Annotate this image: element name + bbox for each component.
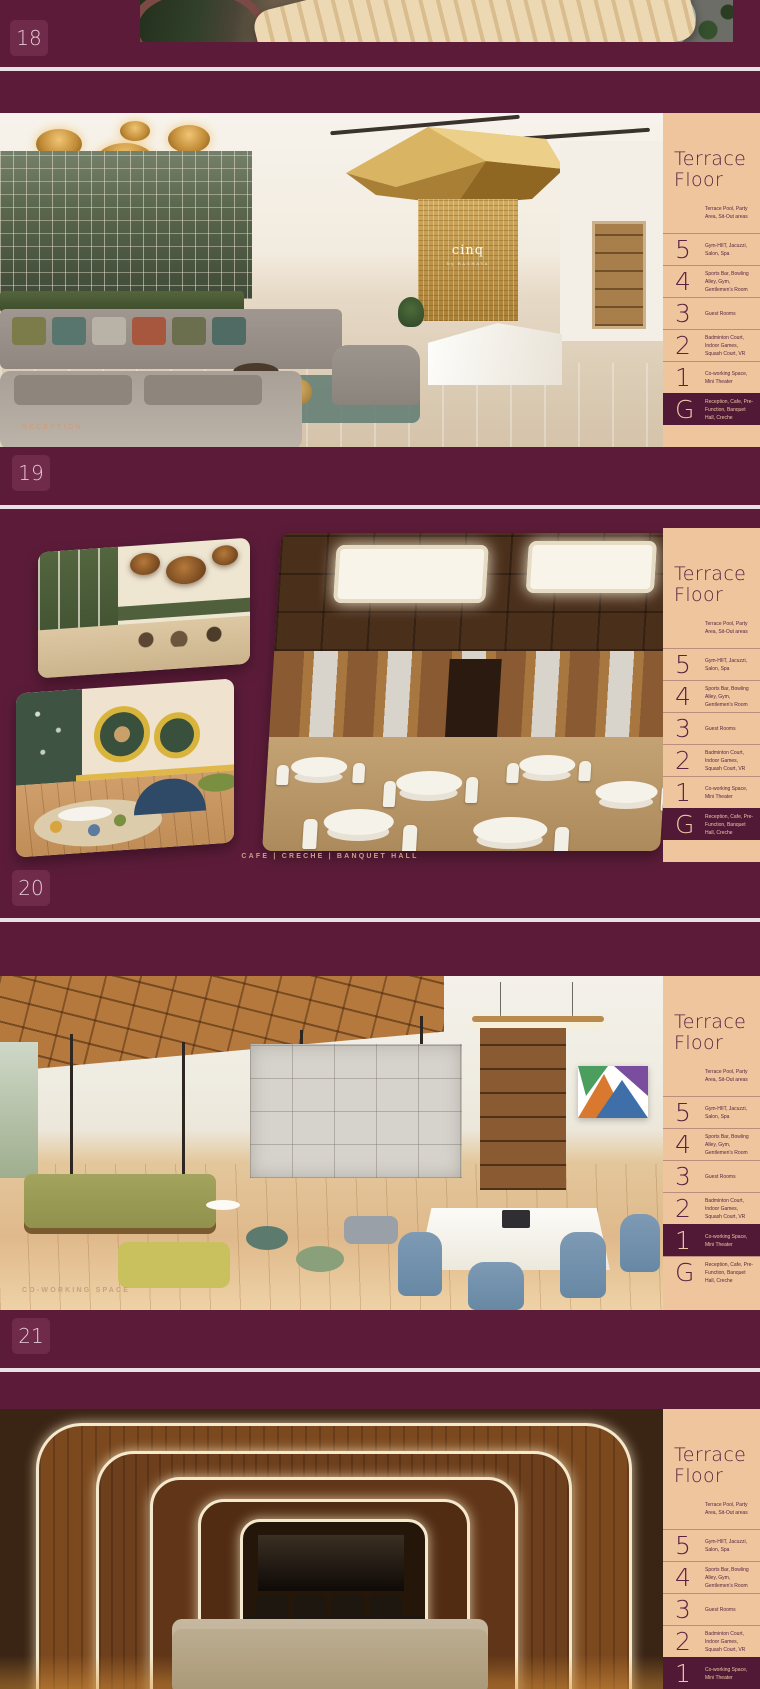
page-number-label: 21 bbox=[18, 1324, 43, 1348]
floor-row-3: 3 Guest Rooms bbox=[663, 297, 760, 329]
sidebar-title: Terrace Floor bbox=[663, 1409, 760, 1487]
floor-amenities: Gym-HIIT, Jacuzzi, Salon, Spa bbox=[705, 1105, 754, 1121]
floor-amenities: Co-working Space, Mini Theater bbox=[705, 370, 754, 386]
floor-number: 2 bbox=[675, 1629, 700, 1654]
floor-rows: 5 Gym-HIIT, Jacuzzi, Salon, Spa 4 Sports… bbox=[663, 233, 760, 447]
floor-row-3: 3 Guest Rooms bbox=[663, 1160, 760, 1192]
chalk-doodles bbox=[22, 698, 74, 772]
floor-amenities: Sports Bar, Bowling Alley, Gym, Gentleme… bbox=[705, 1133, 754, 1157]
floor-row-5: 5 Gym-HIIT, Jacuzzi, Salon, Spa bbox=[663, 1529, 760, 1561]
blue-chair bbox=[398, 1232, 442, 1296]
hall-doorway bbox=[445, 659, 502, 737]
page-number-21[interactable]: 21 bbox=[12, 1318, 50, 1354]
banquet-chair bbox=[352, 763, 365, 783]
floor-number: 3 bbox=[675, 301, 700, 326]
sidebar-title-line2: Floor bbox=[674, 585, 760, 606]
floor-number: 1 bbox=[675, 780, 700, 805]
floor-row-4: 4 Sports Bar, Bowling Alley, Gym, Gentle… bbox=[663, 1128, 760, 1160]
sidebar-slot-19: Terrace Floor Terrace Pool, Party Area, … bbox=[663, 113, 760, 447]
page-number-20[interactable]: 20 bbox=[12, 870, 50, 906]
floor-row-1: 1 Co-working Space, Mini Theater bbox=[663, 1657, 760, 1689]
floor-row-2: 2 Badminton Court, Indoor Games, Squash … bbox=[663, 744, 760, 776]
floor-number: G bbox=[675, 1260, 700, 1285]
floor-directory-sidebar: Terrace Floor Terrace Pool, Party Area, … bbox=[663, 113, 760, 447]
page-number-18[interactable]: 18 bbox=[10, 20, 48, 56]
floor-directory-sidebar: Terrace Floor Terrace Pool, Party Area, … bbox=[663, 976, 760, 1310]
banquet-chair bbox=[554, 827, 570, 851]
glass-green-wall bbox=[0, 151, 252, 299]
floor-row-5: 5 Gym-HIIT, Jacuzzi, Salon, Spa bbox=[663, 233, 760, 265]
ceiling-skylight bbox=[333, 545, 489, 603]
recliner-seat bbox=[370, 1595, 402, 1617]
floor-rows: 5 Gym-HIIT, Jacuzzi, Salon, Spa 4 Sports… bbox=[663, 1529, 760, 1689]
slide-separator bbox=[0, 918, 760, 922]
cushion-dark-teal bbox=[212, 317, 246, 345]
front-sofa bbox=[172, 1619, 488, 1689]
reception-desk bbox=[428, 323, 562, 385]
chalkboard-wall bbox=[16, 689, 82, 786]
cushion-rust bbox=[132, 317, 166, 345]
cushion-grey bbox=[92, 317, 126, 345]
ceiling-skylight bbox=[526, 541, 657, 593]
sidebar-bottom-padding bbox=[663, 1288, 760, 1310]
floor-row-5: 5 Gym-HIIT, Jacuzzi, Salon, Spa bbox=[663, 1096, 760, 1128]
floor-row-2: 2 Badminton Court, Indoor Games, Squash … bbox=[663, 1625, 760, 1657]
abstract-artwork bbox=[578, 1066, 648, 1118]
floor-number: 5 bbox=[675, 1100, 700, 1125]
banquet-chair bbox=[276, 765, 289, 785]
linear-pendant-light bbox=[472, 1016, 604, 1022]
floor-amenities: Reception, Cafe, Pre-Function, Banquet H… bbox=[705, 1261, 754, 1285]
side-table bbox=[206, 1200, 240, 1210]
terrace-floor-amenities: Terrace Pool, Party Area, Sit-Out areas bbox=[705, 620, 755, 636]
recliner-seat bbox=[294, 1595, 326, 1617]
floor-row-G: G Reception, Cafe, Pre-Function, Banquet… bbox=[663, 393, 760, 425]
slide-separator bbox=[0, 505, 760, 509]
blue-chair bbox=[560, 1232, 606, 1298]
laptop bbox=[502, 1210, 530, 1228]
floor-row-1: 1 Co-working Space, Mini Theater bbox=[663, 361, 760, 393]
floor-number: 5 bbox=[675, 237, 700, 262]
floor-row-2: 2 Badminton Court, Indoor Games, Squash … bbox=[663, 329, 760, 361]
floor-amenities: Sports Bar, Bowling Alley, Gym, Gentleme… bbox=[705, 1566, 754, 1590]
jogging-track-shape bbox=[140, 0, 266, 42]
padded-wall-panels bbox=[250, 1044, 462, 1178]
blue-chair bbox=[468, 1262, 524, 1310]
floor-number: 1 bbox=[675, 1661, 700, 1686]
sidebar-title-line2: Floor bbox=[674, 170, 760, 191]
sidebar-bottom-padding bbox=[663, 840, 760, 862]
floor-number: 1 bbox=[675, 365, 700, 390]
aerial-masterplan-image bbox=[140, 0, 733, 42]
sidebar-slot-20: Terrace Floor Terrace Pool, Party Area, … bbox=[663, 528, 760, 862]
sidebar-title-line1: Terrace bbox=[674, 1012, 760, 1033]
floor-amenities: Co-working Space, Mini Theater bbox=[705, 785, 754, 801]
floor-amenities: Sports Bar, Bowling Alley, Gym, Gentleme… bbox=[705, 270, 754, 294]
terrace-floor-amenities: Terrace Pool, Party Area, Sit-Out areas bbox=[705, 1501, 755, 1517]
round-play-niche bbox=[154, 711, 200, 760]
sidebar-slot-22: Terrace Floor Terrace Pool, Party Area, … bbox=[663, 1409, 760, 1689]
image-caption: CO-WORKING SPACE bbox=[22, 1287, 130, 1294]
round-play-niche bbox=[94, 704, 150, 764]
floor-amenities: Gym-HIIT, Jacuzzi, Salon, Spa bbox=[705, 242, 754, 258]
metal-post bbox=[182, 1042, 185, 1192]
floor-row-G: G Reception, Cafe, Pre-Function, Banquet… bbox=[663, 1256, 760, 1288]
floor-amenities: Badminton Court, Indoor Games, Squash Co… bbox=[705, 749, 754, 773]
banquet-chair bbox=[506, 763, 519, 783]
pendant-cord bbox=[500, 982, 501, 1016]
banquet-chair bbox=[465, 777, 479, 803]
floor-row-4: 4 Sports Bar, Bowling Alley, Gym, Gentle… bbox=[663, 680, 760, 712]
floor-row-3: 3 Guest Rooms bbox=[663, 712, 760, 744]
page-number-label: 20 bbox=[18, 876, 43, 900]
floor-number: 4 bbox=[675, 269, 700, 294]
floor-number: 3 bbox=[675, 1597, 700, 1622]
grey-ottoman bbox=[344, 1216, 398, 1244]
sidebar-title-line1: Terrace bbox=[674, 149, 760, 170]
wood-bookshelf bbox=[480, 1028, 566, 1190]
floor-row-3: 3 Guest Rooms bbox=[663, 1593, 760, 1625]
chandelier bbox=[168, 125, 210, 153]
floor-row-1: 1 Co-working Space, Mini Theater bbox=[663, 776, 760, 808]
sidebar-title-line1: Terrace bbox=[674, 1445, 760, 1466]
coworking-space-image bbox=[0, 976, 663, 1310]
floor-number: 2 bbox=[675, 748, 700, 773]
sidebar-title: Terrace Floor bbox=[663, 528, 760, 606]
banquet-chair bbox=[302, 819, 318, 849]
chartreuse-ottoman bbox=[118, 1242, 230, 1288]
floor-row-5: 5 Gym-HIIT, Jacuzzi, Salon, Spa bbox=[663, 648, 760, 680]
seat-cushion bbox=[14, 375, 132, 405]
brochure-page-strip[interactable]: 18 cinq by RAGHAVA bbox=[0, 0, 760, 1689]
recliner-seat bbox=[256, 1595, 288, 1617]
floor-number: 5 bbox=[675, 1533, 700, 1558]
gold-feature-wall: cinq by RAGHAVA bbox=[418, 199, 518, 321]
floor-number: G bbox=[675, 812, 700, 837]
cushion-olive bbox=[12, 317, 46, 345]
floor-number: 3 bbox=[675, 1164, 700, 1189]
floor-amenities: Guest Rooms bbox=[705, 725, 754, 733]
metal-post bbox=[70, 1034, 73, 1188]
disc-pendant-lamp bbox=[130, 552, 160, 576]
slide-separator bbox=[0, 1368, 760, 1372]
chandelier bbox=[120, 121, 150, 141]
brand-name: cinq bbox=[452, 243, 484, 258]
lattice-screen bbox=[0, 151, 252, 299]
banquet-chair bbox=[383, 781, 397, 807]
green-pouf bbox=[296, 1246, 344, 1272]
banquet-hall-photo bbox=[262, 533, 679, 851]
recliner-seat bbox=[332, 1595, 364, 1617]
disc-pendant-lamp bbox=[212, 544, 238, 566]
floor-amenities: Badminton Court, Indoor Games, Squash Co… bbox=[705, 334, 754, 358]
floor-amenities: Reception, Cafe, Pre-Function, Banquet H… bbox=[705, 813, 754, 837]
floor-number: 5 bbox=[675, 652, 700, 677]
building-roof-shape bbox=[251, 0, 700, 42]
page-number-label: 19 bbox=[18, 461, 43, 485]
banquet-chair bbox=[578, 761, 591, 781]
potted-plant bbox=[398, 297, 424, 327]
floor-number: 4 bbox=[675, 684, 700, 709]
floor-amenities: Guest Rooms bbox=[705, 1606, 754, 1614]
floor-number: 1 bbox=[675, 1228, 700, 1253]
slide-separator bbox=[0, 67, 760, 71]
floor-directory-sidebar: Terrace Floor Terrace Pool, Party Area, … bbox=[663, 1409, 760, 1689]
image-caption: RECEPTION bbox=[22, 424, 83, 431]
sidebar-title: Terrace Floor bbox=[663, 113, 760, 191]
floor-number: 2 bbox=[675, 333, 700, 358]
floor-amenities: Co-working Space, Mini Theater bbox=[705, 1233, 754, 1249]
theater-screen bbox=[258, 1535, 404, 1591]
cushion-teal bbox=[52, 317, 86, 345]
floor-amenities: Badminton Court, Indoor Games, Squash Co… bbox=[705, 1630, 754, 1654]
floor-amenities: Gym-HIIT, Jacuzzi, Salon, Spa bbox=[705, 1538, 754, 1554]
pendant-cord bbox=[572, 982, 573, 1016]
floor-amenities: Badminton Court, Indoor Games, Squash Co… bbox=[705, 1197, 754, 1221]
floor-row-4: 4 Sports Bar, Bowling Alley, Gym, Gentle… bbox=[663, 1561, 760, 1593]
reception-lobby-image: cinq by RAGHAVA bbox=[0, 113, 663, 447]
teal-pouf bbox=[246, 1226, 288, 1250]
teddy-bear bbox=[114, 726, 130, 743]
floor-number: G bbox=[675, 397, 700, 422]
creche-photo bbox=[16, 678, 234, 857]
floor-amenities: Reception, Cafe, Pre-Function, Banquet H… bbox=[705, 398, 754, 422]
floor-row-1: 1 Co-working Space, Mini Theater bbox=[663, 1224, 760, 1256]
green-sofa bbox=[24, 1174, 216, 1228]
banquet-chair bbox=[402, 825, 418, 851]
floor-amenities: Guest Rooms bbox=[705, 310, 754, 318]
terrace-floor-amenities: Terrace Pool, Party Area, Sit-Out areas bbox=[705, 1068, 755, 1084]
terrace-floor-amenities: Terrace Pool, Party Area, Sit-Out areas bbox=[705, 205, 755, 221]
floor-number: 4 bbox=[675, 1565, 700, 1590]
mini-theater-image bbox=[0, 1409, 663, 1689]
sidebar-title-line2: Floor bbox=[674, 1033, 760, 1054]
sidebar-title-line2: Floor bbox=[674, 1466, 760, 1487]
floor-amenities: Guest Rooms bbox=[705, 1173, 754, 1181]
sidebar-slot-21: Terrace Floor Terrace Pool, Party Area, … bbox=[663, 976, 760, 1310]
page-number-19[interactable]: 19 bbox=[12, 455, 50, 491]
cushion-green bbox=[172, 317, 206, 345]
floor-number: 2 bbox=[675, 1196, 700, 1221]
floor-number: 4 bbox=[675, 1132, 700, 1157]
disc-pendant-lamp bbox=[166, 555, 206, 586]
side-window bbox=[0, 1042, 38, 1178]
image-caption: CAFE | CRECHE | BANQUET HALL bbox=[200, 853, 460, 860]
brand-logo: cinq by RAGHAVA bbox=[418, 243, 518, 266]
sidebar-bottom-padding bbox=[663, 425, 760, 447]
seat-cushion bbox=[144, 375, 262, 405]
sidebar-title: Terrace Floor bbox=[663, 976, 760, 1054]
page-number-label: 18 bbox=[16, 26, 41, 50]
floor-row-4: 4 Sports Bar, Bowling Alley, Gym, Gentle… bbox=[663, 265, 760, 297]
floor-amenities: Sports Bar, Bowling Alley, Gym, Gentleme… bbox=[705, 685, 754, 709]
amenities-collage bbox=[0, 528, 663, 862]
brand-byline: by RAGHAVA bbox=[418, 261, 518, 266]
floor-amenities: Gym-HIIT, Jacuzzi, Salon, Spa bbox=[705, 657, 754, 673]
sidebar-title-line1: Terrace bbox=[674, 564, 760, 585]
floor-directory-sidebar: Terrace Floor Terrace Pool, Party Area, … bbox=[663, 528, 760, 862]
cafe-photo bbox=[38, 538, 250, 679]
floor-rows: 5 Gym-HIIT, Jacuzzi, Salon, Spa 4 Sports… bbox=[663, 1096, 760, 1310]
floor-rows: 5 Gym-HIIT, Jacuzzi, Salon, Spa 4 Sports… bbox=[663, 648, 760, 862]
blue-chair bbox=[620, 1214, 660, 1272]
floor-number: 3 bbox=[675, 716, 700, 741]
lounge-chair bbox=[332, 345, 420, 405]
floor-row-G: G Reception, Cafe, Pre-Function, Banquet… bbox=[663, 808, 760, 840]
floor-row-2: 2 Badminton Court, Indoor Games, Squash … bbox=[663, 1192, 760, 1224]
floor-amenities: Co-working Space, Mini Theater bbox=[705, 1666, 754, 1682]
wood-display-shelf bbox=[592, 221, 646, 329]
